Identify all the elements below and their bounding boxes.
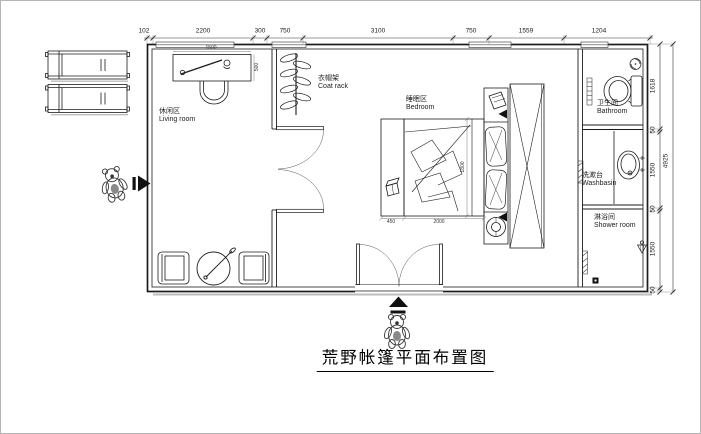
living-room-label-zh: 休闲区	[159, 108, 195, 116]
dim-label-right-0: 1618	[650, 79, 657, 93]
dim-label-top-4: 3100	[371, 28, 385, 35]
bed	[404, 119, 484, 216]
coat-rack-label: 衣帽架 Coat rack	[318, 75, 348, 92]
dim-label-right-2: 1550	[650, 163, 657, 177]
entrance-arrow-bottom	[389, 297, 408, 314]
bottom-double-door	[355, 244, 443, 293]
towel-rail-icon	[587, 78, 592, 105]
bathroom-label-en: Bathroom	[597, 108, 627, 116]
washbasin-label-en: Washbasin	[582, 180, 616, 188]
interior-double-door	[277, 127, 324, 213]
dim-label-top-7: 1204	[592, 28, 606, 35]
living-room-label-en: Living room	[159, 116, 195, 124]
wardrobe	[510, 84, 544, 248]
bear-mascot	[97, 165, 411, 349]
round-table	[197, 247, 236, 285]
bathroom-label-zh: 卫生间	[597, 100, 627, 108]
dim-label-top-1: 2200	[196, 28, 210, 35]
armchair-right	[239, 252, 269, 284]
bedroom-label: 睡眠区 Bedroom	[406, 96, 434, 113]
washbasin-label-zh: 洗漱台	[582, 172, 616, 180]
coat-rack-label-zh: 衣帽架	[318, 75, 348, 83]
desk-chair	[200, 81, 228, 104]
dim-label-bench-width: 450	[387, 219, 395, 225]
dim-label-right-3: 50	[650, 205, 657, 212]
dim-label-right-5: 50	[650, 286, 657, 293]
floor-plan-canvas: 休闲区 Living room 衣帽架 Coat rack 睡眠区 Bedroo…	[0, 0, 701, 434]
shower-head-icon	[638, 241, 647, 253]
coat-rack-icon	[279, 52, 311, 115]
washbasin-label: 洗漱台 Washbasin	[582, 172, 616, 189]
exhaust-fan-icon	[630, 59, 641, 70]
shower-room-label-en: Shower room	[594, 222, 636, 230]
bedroom-label-zh: 睡眠区	[406, 96, 434, 104]
dim-label-desk-width: 1500	[205, 45, 216, 51]
dim-label-bed-length: 1800	[460, 161, 466, 172]
armchair-left	[158, 252, 189, 284]
dim-label-bed-width: 2000	[433, 219, 444, 225]
washbasin-icon	[614, 131, 645, 204]
bedroom-label-en: Bedroom	[406, 104, 434, 112]
bed-bench	[381, 119, 404, 216]
shower-room-label-zh: 淋浴间	[594, 214, 636, 222]
pillow	[485, 127, 507, 210]
living-room-label: 休闲区 Living room	[159, 108, 195, 125]
dim-label-right-total: 4925	[663, 154, 670, 168]
bathroom-label: 卫生间 Bathroom	[597, 100, 627, 117]
dim-label-desk-depth: 500	[254, 63, 260, 71]
shower-room-label: 淋浴间 Shower room	[594, 214, 636, 231]
dim-label-top-6: 1559	[519, 28, 533, 35]
coat-rack-label-en: Coat rack	[318, 83, 348, 91]
stool	[487, 218, 506, 237]
dim-label-right-1: 50	[650, 126, 657, 133]
dim-label-top-5: 750	[466, 28, 477, 35]
dim-label-right-4: 1550	[650, 242, 657, 256]
dim-label-top-2: 300	[255, 28, 266, 35]
desk-dimension	[173, 52, 254, 82]
dim-label-top-0: 102	[139, 28, 150, 35]
dim-label-top-3: 750	[280, 28, 291, 35]
page-title: 荒野帐篷平面布置图	[317, 344, 494, 372]
desk	[173, 55, 251, 82]
partition-wall-living	[272, 49, 277, 287]
floor-drain-icon	[593, 278, 599, 284]
